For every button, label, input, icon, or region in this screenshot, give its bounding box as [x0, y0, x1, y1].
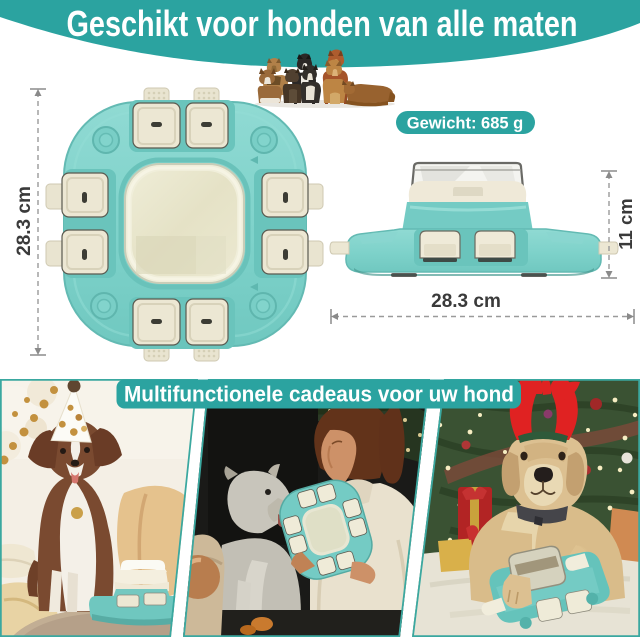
svg-text:11 cm: 11 cm [615, 198, 636, 249]
svg-text:Geschikt voor honden van alle: Geschikt voor honden van alle maten [67, 3, 578, 44]
svg-text:Multifunctionele cadeaus voor: Multifunctionele cadeaus voor uw hond [124, 382, 514, 407]
svg-text:28.3 cm: 28.3 cm [431, 291, 501, 312]
svg-text:28.3 cm: 28.3 cm [14, 186, 35, 256]
svg-text:Gewicht: 685 g: Gewicht: 685 g [407, 115, 523, 133]
